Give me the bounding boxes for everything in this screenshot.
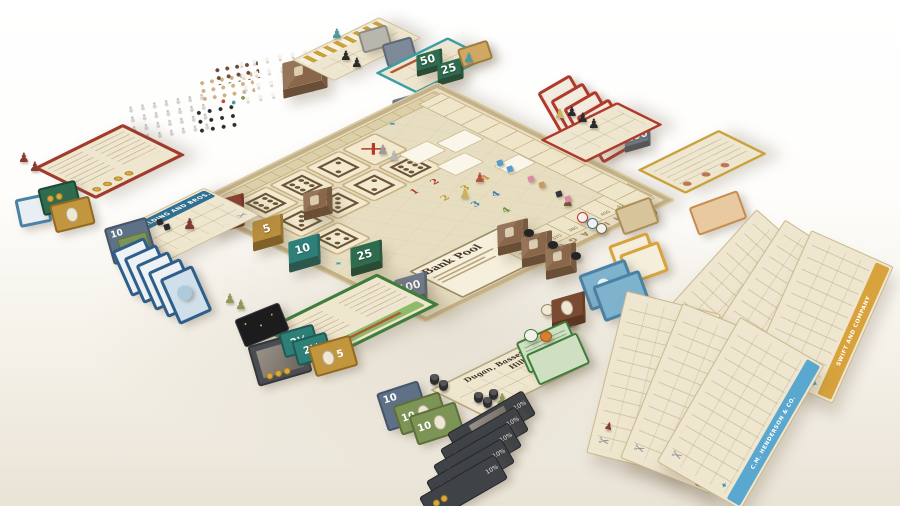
black-meeple[interactable]: ♟: [577, 112, 589, 125]
black-meeple[interactable]: ♟: [566, 106, 578, 119]
yellow-meeple[interactable]: ♟: [459, 188, 471, 201]
gray-meeple[interactable]: ♟: [388, 150, 400, 163]
tabletop-scene: ♟ ♟ ♟ 50 25 ♟ 100 25 5 10 ⚅ ⚅ ⚁ ✕ ⚂ ⚂ ⚁ …: [0, 0, 900, 506]
meeples-colored-cluster[interactable]: [219, 91, 256, 117]
black-cylinder[interactable]: [474, 392, 483, 403]
black-cylinder[interactable]: [430, 374, 439, 385]
portrait-oval: [64, 206, 79, 223]
black-marker-disc[interactable]: [571, 252, 581, 260]
crate-label: [505, 227, 514, 238]
maroon-meeple[interactable]: ♟: [183, 217, 196, 232]
red-meeple[interactable]: ♟: [29, 161, 41, 174]
green-meeple[interactable]: ♟: [235, 299, 247, 312]
crate-label: [294, 65, 303, 76]
white-token[interactable]: [524, 329, 538, 342]
demand-row-green: 4: [499, 204, 521, 215]
red-meeple[interactable]: ♟: [18, 152, 30, 165]
teal-meeple[interactable]: ♟: [463, 52, 475, 65]
black-marker-disc[interactable]: [524, 229, 534, 237]
teal-meeple[interactable]: ♟: [331, 28, 343, 41]
dark-share-fan[interactable]: 10% 10% 10% 10% 10%: [420, 410, 550, 506]
yellow-meeple[interactable]: ♟: [554, 108, 566, 121]
demand-row-blue: 3 4: [468, 188, 510, 209]
bill-value: 5: [335, 348, 345, 360]
orange-coin[interactable]: [540, 331, 552, 342]
star-icon: ✦: [386, 120, 402, 128]
share-seal: [175, 283, 195, 303]
gray-meeple[interactable]: ♟: [377, 144, 389, 157]
price-token-white[interactable]: [596, 223, 607, 234]
gold-coin-icons: [432, 494, 449, 506]
black-meeple[interactable]: ♟: [340, 50, 352, 63]
black-marker-disc[interactable]: [548, 241, 558, 249]
blue-share-fan[interactable]: [120, 242, 230, 312]
green-meeple[interactable]: ♟: [224, 293, 236, 306]
black-meeple[interactable]: ♟: [588, 118, 600, 131]
crate-label: [553, 251, 562, 262]
black-cylinder[interactable]: [439, 380, 448, 391]
crate-label: [529, 239, 538, 250]
star-icon: ✦: [332, 260, 348, 268]
portrait-oval: [320, 349, 336, 367]
red-meeple[interactable]: ♟: [474, 172, 486, 185]
crate-label: [310, 194, 319, 205]
black-meeple[interactable]: ♟: [351, 57, 363, 70]
dividend-label: 10%: [485, 463, 500, 476]
portrait-oval: [559, 298, 575, 316]
